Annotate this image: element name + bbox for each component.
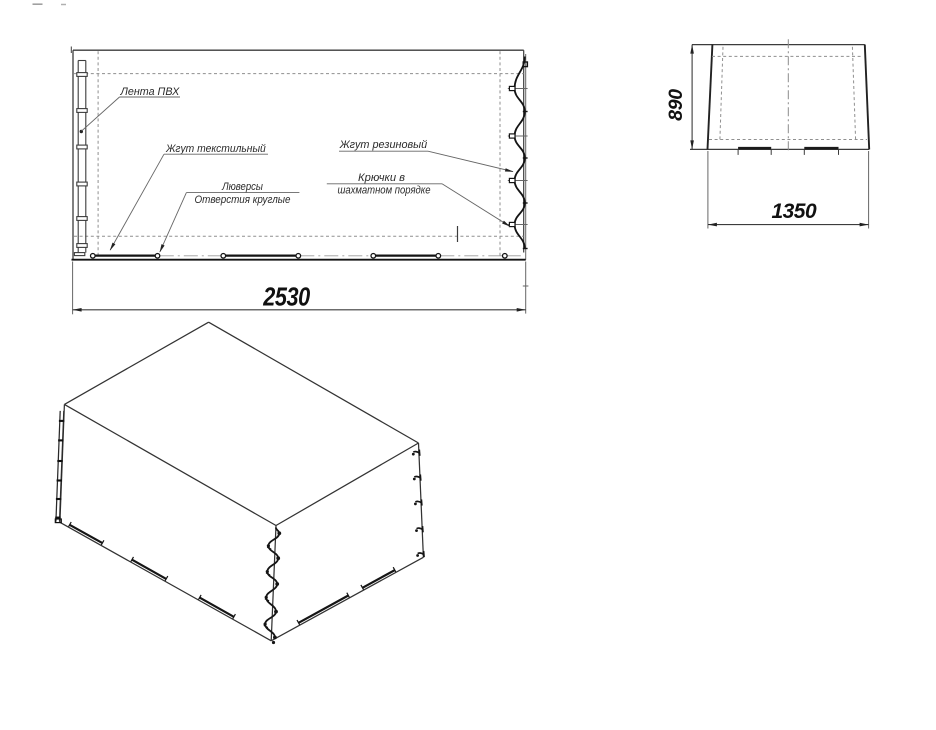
svg-text:Жгут резиновый: Жгут резиновый	[339, 139, 427, 151]
svg-text:Крючки в: Крючки в	[358, 172, 405, 184]
svg-text:шахматном порядке: шахматном порядке	[337, 185, 430, 197]
svg-text:Жгут текстильный: Жгут текстильный	[165, 142, 266, 154]
svg-text:Люверсы: Люверсы	[221, 181, 263, 193]
svg-text:2530: 2530	[262, 284, 310, 312]
svg-text:890: 890	[665, 89, 687, 121]
svg-text:Лента ПВХ: Лента ПВХ	[120, 86, 180, 98]
svg-text:1350: 1350	[771, 200, 817, 223]
svg-text:Отверстия круглые: Отверстия круглые	[194, 193, 290, 206]
